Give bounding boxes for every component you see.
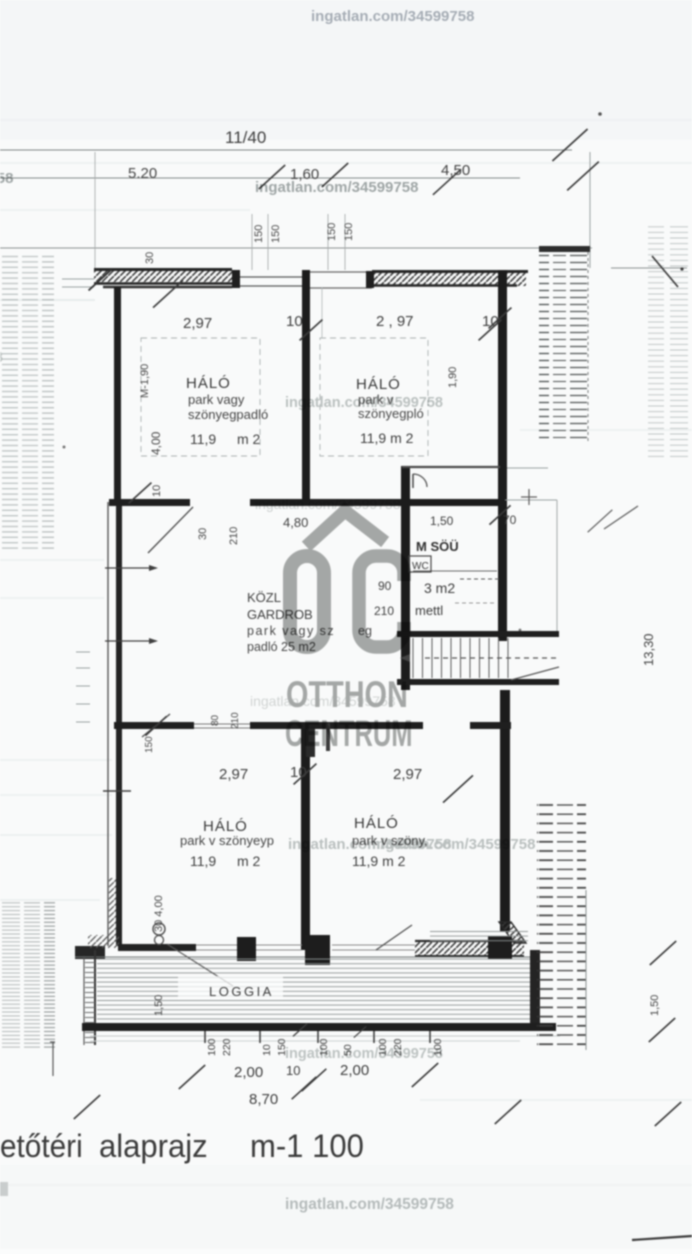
svg-text:10: 10: [290, 764, 307, 781]
svg-text:11/40: 11/40: [225, 128, 266, 147]
svg-text:210: 210: [230, 712, 241, 729]
svg-text:ingatlan.com/34599758: ingatlan.com/34599758: [255, 496, 401, 512]
svg-text:ingatlan.com/34599758: ingatlan.com/34599758: [0, 350, 3, 366]
svg-text:3 m2: 3 m2: [424, 580, 455, 596]
svg-text:1,50: 1,50: [430, 514, 454, 528]
svg-text:M SÖÜ: M SÖÜ: [416, 539, 459, 554]
svg-text:ingatlan.com/34599758: ingatlan.com/34599758: [255, 179, 418, 196]
svg-text:2 , 97: 2 , 97: [376, 313, 414, 330]
svg-text:GARDROB: GARDROB: [247, 607, 313, 622]
svg-text:2,97: 2,97: [393, 766, 422, 783]
svg-text:8,70: 8,70: [249, 1091, 278, 1108]
svg-text:HÁLÓ: HÁLÓ: [356, 376, 401, 393]
svg-text:CENTRUM: CENTRUM: [285, 712, 413, 754]
svg-text:KÖZL: KÖZL: [247, 590, 281, 605]
svg-text:LOGGIA: LOGGIA: [209, 984, 274, 999]
svg-text:m 2: m 2: [237, 853, 261, 869]
svg-text:80: 80: [210, 714, 221, 726]
svg-text:11,9 m 2: 11,9 m 2: [352, 853, 406, 869]
svg-text:220: 220: [221, 1038, 233, 1056]
svg-text:210: 210: [374, 604, 394, 618]
svg-text:2,00: 2,00: [234, 1064, 263, 1081]
svg-text:ingatlan.com/34599758: ingatlan.com/34599758: [285, 1046, 443, 1062]
svg-text:WC: WC: [412, 561, 429, 572]
svg-text:150: 150: [270, 225, 282, 243]
svg-text:4,80: 4,80: [283, 515, 308, 530]
svg-text:210: 210: [228, 527, 240, 545]
svg-text:2,97: 2,97: [219, 766, 248, 783]
svg-text:4,50: 4,50: [441, 162, 470, 179]
svg-text:HÁLÓ: HÁLÓ: [354, 815, 399, 832]
svg-text:alaprajz: alaprajz: [99, 1128, 208, 1165]
svg-text:2,00: 2,00: [340, 1062, 369, 1079]
svg-text:ingatlan.com/34599758: ingatlan.com/34599758: [372, 836, 535, 853]
svg-text:M-1,90: M-1,90: [139, 364, 151, 398]
svg-text:park v szönyeyp: park v szönyeyp: [180, 833, 274, 848]
svg-text:1,50: 1,50: [153, 995, 165, 1016]
svg-text:100: 100: [206, 1038, 218, 1056]
svg-text:10: 10: [261, 1044, 273, 1056]
svg-text:m 2: m 2: [237, 431, 261, 447]
svg-text:150: 150: [144, 736, 155, 753]
svg-text:11,9 m 2: 11,9 m 2: [360, 430, 414, 446]
svg-text:150: 150: [326, 223, 338, 241]
svg-text:70: 70: [503, 513, 517, 527]
svg-text:11,9: 11,9: [190, 431, 216, 447]
svg-text:m-1 100: m-1 100: [250, 1128, 364, 1165]
svg-text:13,30: 13,30: [641, 633, 656, 666]
svg-text:2,97: 2,97: [183, 315, 212, 332]
svg-text:90: 90: [378, 579, 392, 593]
svg-text:10: 10: [286, 313, 303, 330]
svg-text:mettl: mettl: [415, 603, 443, 618]
svg-text:30: 30: [144, 252, 156, 264]
svg-text:etőtéri: etőtéri: [0, 1128, 83, 1164]
svg-text:5.20: 5.20: [128, 165, 157, 182]
svg-text:park vagy: park vagy: [188, 392, 245, 407]
svg-text:10: 10: [286, 1063, 300, 1078]
svg-text:ingatlan.com/34599758: ingatlan.com/34599758: [0, 170, 13, 187]
svg-text:1,90: 1,90: [447, 367, 459, 388]
svg-text:11,9: 11,9: [190, 853, 216, 869]
svg-text:ingatlan.com/34599758: ingatlan.com/34599758: [285, 1196, 454, 1213]
svg-text:10: 10: [482, 313, 499, 330]
svg-text:150: 150: [253, 225, 265, 243]
svg-text:150: 150: [343, 223, 355, 241]
svg-text:ingatlan.com/34599758: ingatlan.com/34599758: [311, 8, 474, 25]
svg-text:ingatlan.com/34599758: ingatlan.com/34599758: [285, 395, 443, 411]
svg-text:30 4,00: 30 4,00: [153, 895, 165, 932]
svg-text:1,50: 1,50: [649, 995, 661, 1016]
svg-text:OTTHON: OTTHON: [286, 675, 408, 716]
svg-text:szönyegpadló: szönyegpadló: [188, 407, 268, 422]
svg-text:HÁLÓ: HÁLÓ: [186, 375, 231, 392]
svg-text:10: 10: [151, 485, 163, 497]
svg-text:4,00: 4,00: [149, 431, 163, 455]
svg-text:30: 30: [197, 528, 209, 540]
